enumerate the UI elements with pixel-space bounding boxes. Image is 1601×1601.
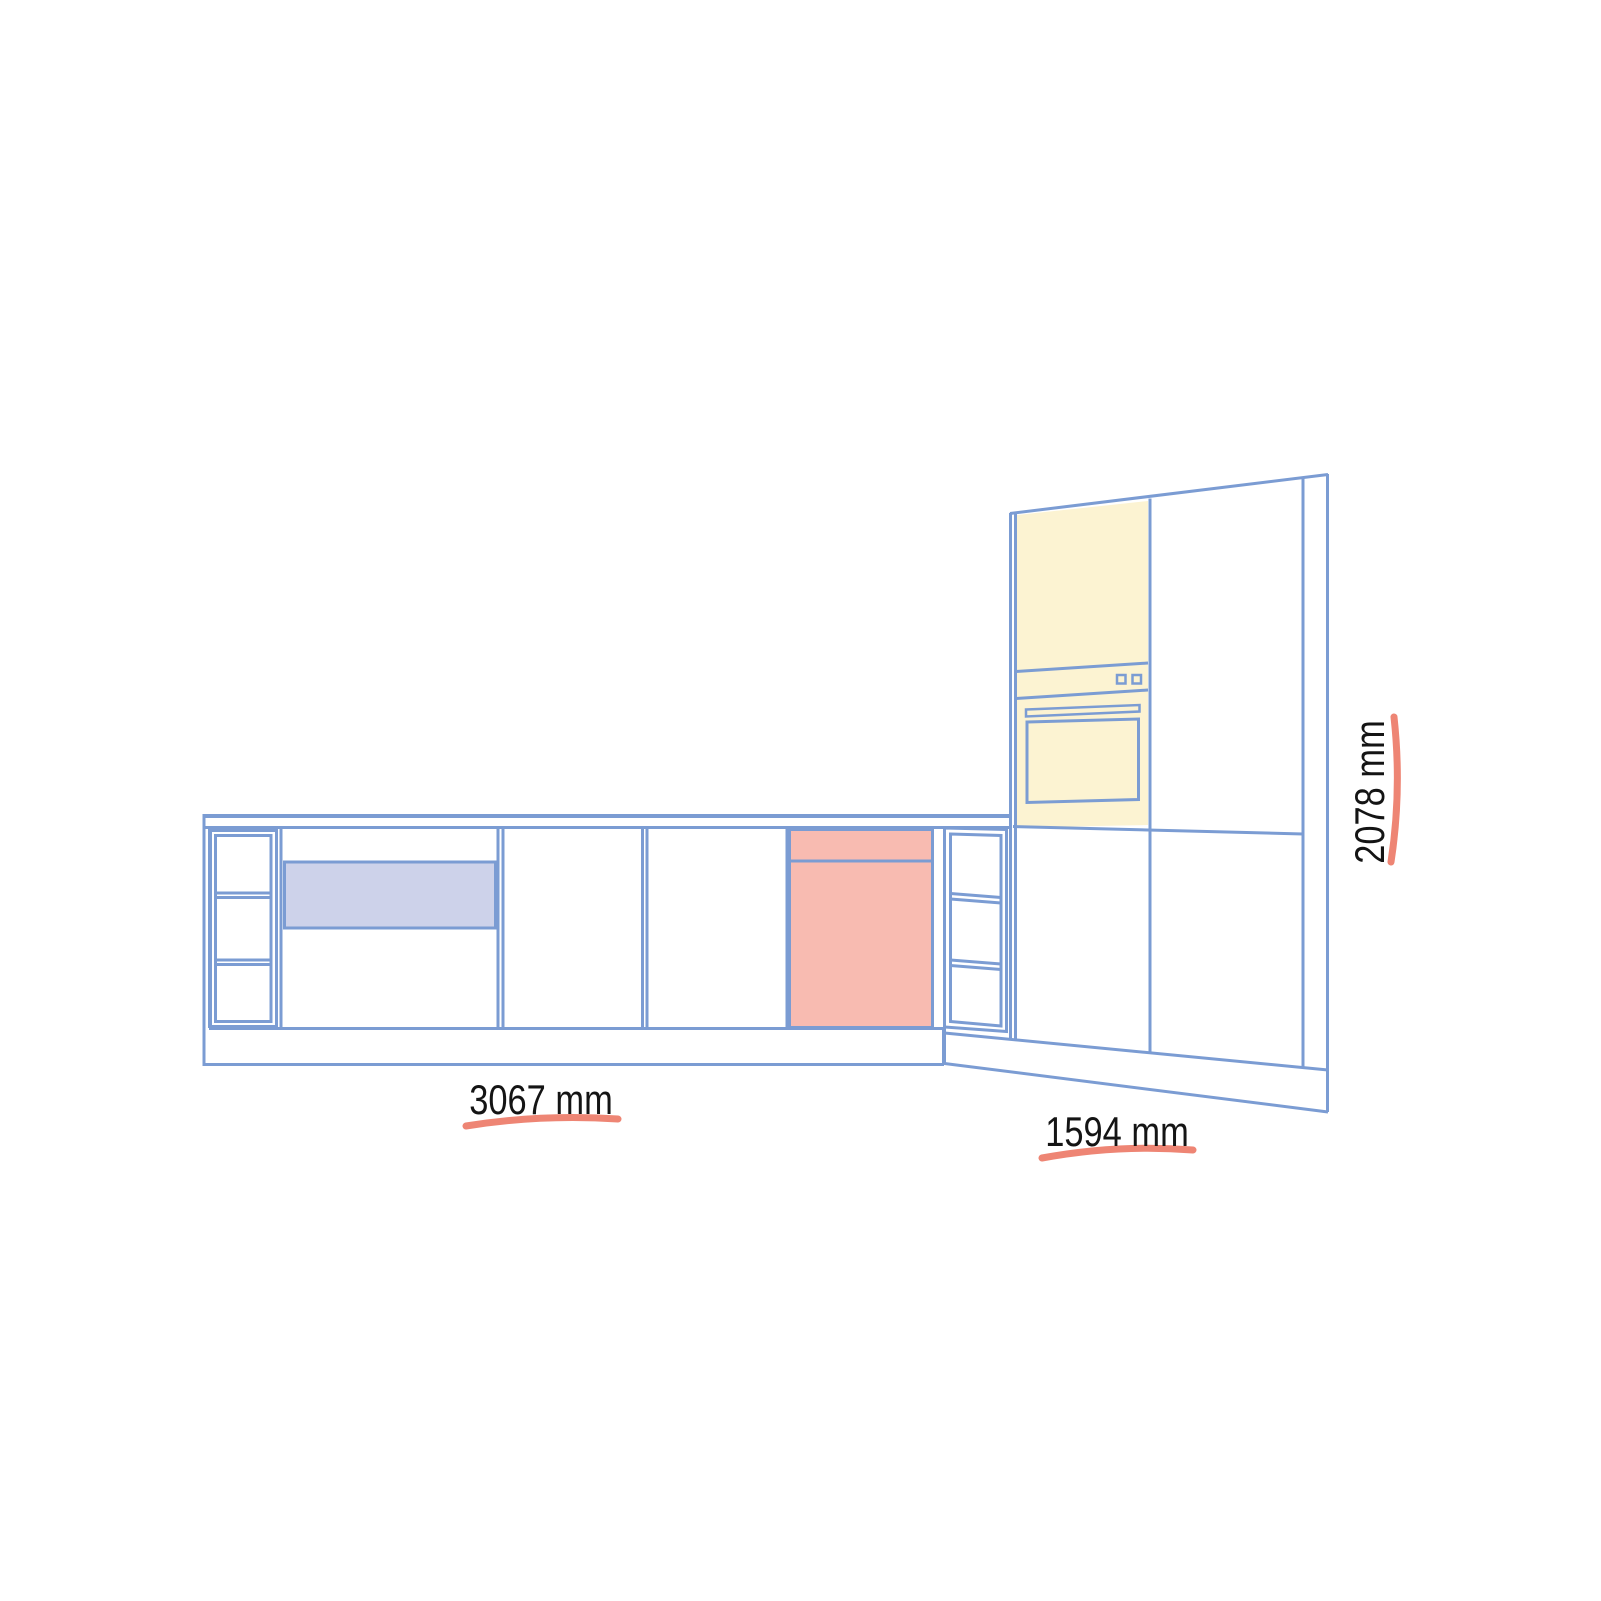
corner-shelf-divider <box>951 899 1002 903</box>
kitchen-plan-canvas: 3067 mm 1594 mm 2078 mm <box>0 0 1601 1601</box>
tall-unit-plinth-edge <box>945 1064 1329 1113</box>
dimension-label-right-run-width: 1594 mm <box>1045 1108 1189 1156</box>
corner-shelf-divider <box>951 894 1002 898</box>
corner-shelf-inner-frame <box>951 834 1002 1026</box>
dimension-label-base-run-width: 3067 mm <box>469 1076 613 1124</box>
appliance-cabinet-highlight[interactable] <box>790 830 933 1028</box>
base-cabinet-run <box>203 814 1009 1066</box>
appliance-cabinet-front[interactable] <box>790 830 933 1028</box>
tall-unit-bottom-edge <box>945 1033 1329 1070</box>
tall-unit-top-edge <box>1010 475 1328 514</box>
corner-shelf-divider <box>951 966 1002 970</box>
corner-shelf-frame <box>945 828 1007 1032</box>
drawer-front-highlight[interactable] <box>285 862 496 928</box>
corner-shelf-divider <box>951 960 1002 964</box>
shelf-unit-inner-frame <box>216 836 272 1022</box>
tall-unit-counter-line <box>1013 827 1303 835</box>
shelf-unit-frame <box>211 831 277 1027</box>
open-shelf-unit-left <box>211 831 277 1027</box>
dimension-label-tall-unit-height: 2078 mm <box>1346 720 1394 864</box>
corner-open-shelf-unit <box>945 828 1007 1064</box>
